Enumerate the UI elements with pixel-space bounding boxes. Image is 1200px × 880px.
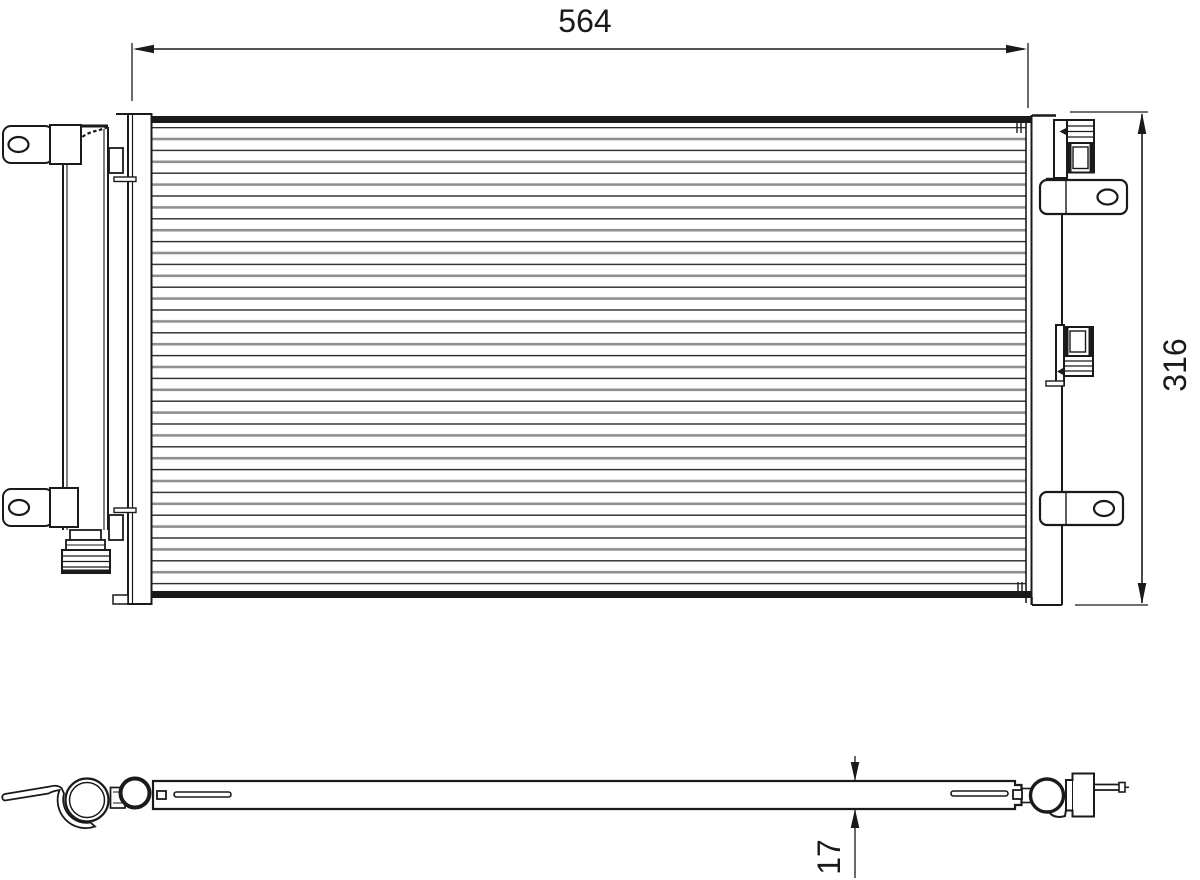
pipe-lower <box>1032 525 1062 605</box>
mounting-bracket-bottom-right <box>1040 492 1123 525</box>
condenser-technical-drawing: 564 316 <box>0 0 1200 880</box>
mounting-bracket-bottom-left <box>3 488 78 527</box>
side-view: 17 <box>2 756 1129 878</box>
port-opening <box>1070 331 1086 352</box>
bolt-hole <box>9 137 29 152</box>
drier-bottom-cap <box>62 530 110 574</box>
pipe-cross-section-left <box>121 779 150 808</box>
dim-thickness-label: 17 <box>811 839 847 875</box>
dimension-thickness: 17 <box>811 756 859 878</box>
pin-tip <box>1119 783 1125 793</box>
right-slot <box>951 791 1008 796</box>
front-view: 564 316 <box>3 3 1193 605</box>
drier-cross-section <box>66 779 109 822</box>
spring-clip <box>78 128 107 142</box>
dim-height-label: 316 <box>1157 338 1193 391</box>
fitting-middle-right <box>1046 325 1093 386</box>
condenser-core <box>139 115 1032 605</box>
dimension-width: 564 <box>132 3 1028 108</box>
port-opening <box>1073 147 1088 169</box>
pipe-cross-section-right <box>1031 779 1064 812</box>
right-end-connector <box>1022 774 1129 818</box>
bolt-hole <box>9 500 29 515</box>
right-port-square <box>1013 790 1022 799</box>
fitting-top-right <box>1032 116 1094 179</box>
technical-drawing-page: 564 316 <box>0 0 1200 880</box>
bolt-hole <box>1098 190 1118 205</box>
bolt-hole <box>1094 501 1114 516</box>
core-profile <box>153 781 1022 809</box>
mounting-bracket-top-right <box>1040 180 1127 214</box>
left-port-square <box>157 791 166 799</box>
left-slot <box>174 792 231 797</box>
dim-width-label: 564 <box>558 3 611 39</box>
mounting-bracket-top-left <box>3 125 81 164</box>
